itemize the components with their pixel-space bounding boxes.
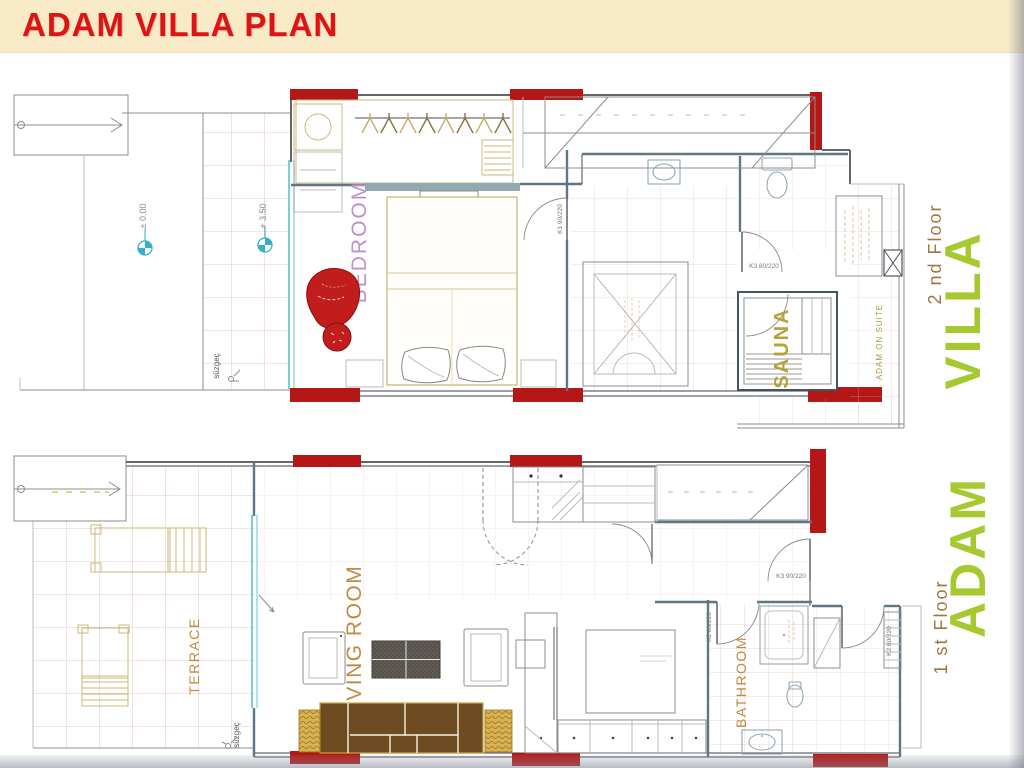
first-floor-plan: TERRACE süzgeç [14,449,996,767]
exterior-stair-2f [14,95,128,155]
sofa-pouf [299,710,320,752]
armchair [303,632,345,684]
outer-boundary [902,606,921,748]
pillow [457,346,506,382]
exterior-stair-1f [14,456,126,521]
door-tag: K2 80/220 [706,612,713,642]
door-tag: K1 90/220 [557,204,564,234]
level-marker-ground: ± 0.00 [138,204,152,255]
drain-label-2f: süzgeç [212,353,221,378]
sofa [320,703,483,753]
shelf-rack [482,140,513,175]
red-wall-segment [510,455,582,467]
nightstand [346,360,383,387]
pillow [402,347,451,382]
rug [372,641,440,678]
red-wall-segment [290,388,360,402]
closet-1f: K2 80/220 [812,606,921,757]
slide: ADAM VILLA PLAN [0,0,1024,768]
red-wall-segment [513,388,583,402]
hanger-icons [362,113,511,133]
tv-unit [516,613,557,753]
adam-caption: ADAM [940,476,996,638]
bathroom-label: BATHROOM [733,636,749,728]
terrace-label: TERRACE [186,617,202,694]
page-title: ADAM VILLA PLAN [22,6,338,44]
sauna-label: SAUNA [771,307,793,388]
door-bedroom-2f: K1 90/220 [524,198,567,240]
red-armchair [307,269,360,328]
armchair [464,629,508,686]
page-edge-right [1008,0,1024,768]
kitchen-counter [558,720,706,753]
floor-plan-canvas: süzgeç ± 0.00 + 3.50 [0,0,1024,768]
bed [387,197,517,385]
suite-label: ADAM ON SUITE [875,304,884,380]
column-marker [884,250,902,276]
second-floor-plan: süzgeç ± 0.00 + 3.50 [14,89,991,428]
page-edge-bottom [0,755,1024,768]
dining-table [586,630,675,713]
door-tag: K3 80/220 [749,263,779,270]
red-wall-segment [810,449,826,533]
red-wall-segment [510,89,583,100]
nightstand [521,360,556,387]
living-room-label: LIVING ROOM [343,565,366,722]
red-wall-segment [293,455,361,467]
red-wall-segment [290,89,358,100]
bedroom-2f: BEDROOM [307,181,556,387]
slide-header: ADAM VILLA PLAN [0,0,1024,53]
door-tag: K2 80/220 [886,626,893,656]
sofa-pouf [485,710,512,752]
villa-caption: VILLA [935,230,991,389]
red-pouf [323,323,351,351]
bathroom-1f: K2 80/220 BATHROOM [655,600,812,757]
drain-label-1f: süzgeç [232,722,241,747]
level-text-ground: ± 0.00 [138,204,148,229]
level-text-upper: + 3.50 [258,203,268,228]
wardrobe-2f [294,100,513,212]
door-tag: K3 90/220 [776,573,806,580]
interior-stair-1f [655,465,812,522]
sauna-2f: SAUNA [738,292,837,390]
